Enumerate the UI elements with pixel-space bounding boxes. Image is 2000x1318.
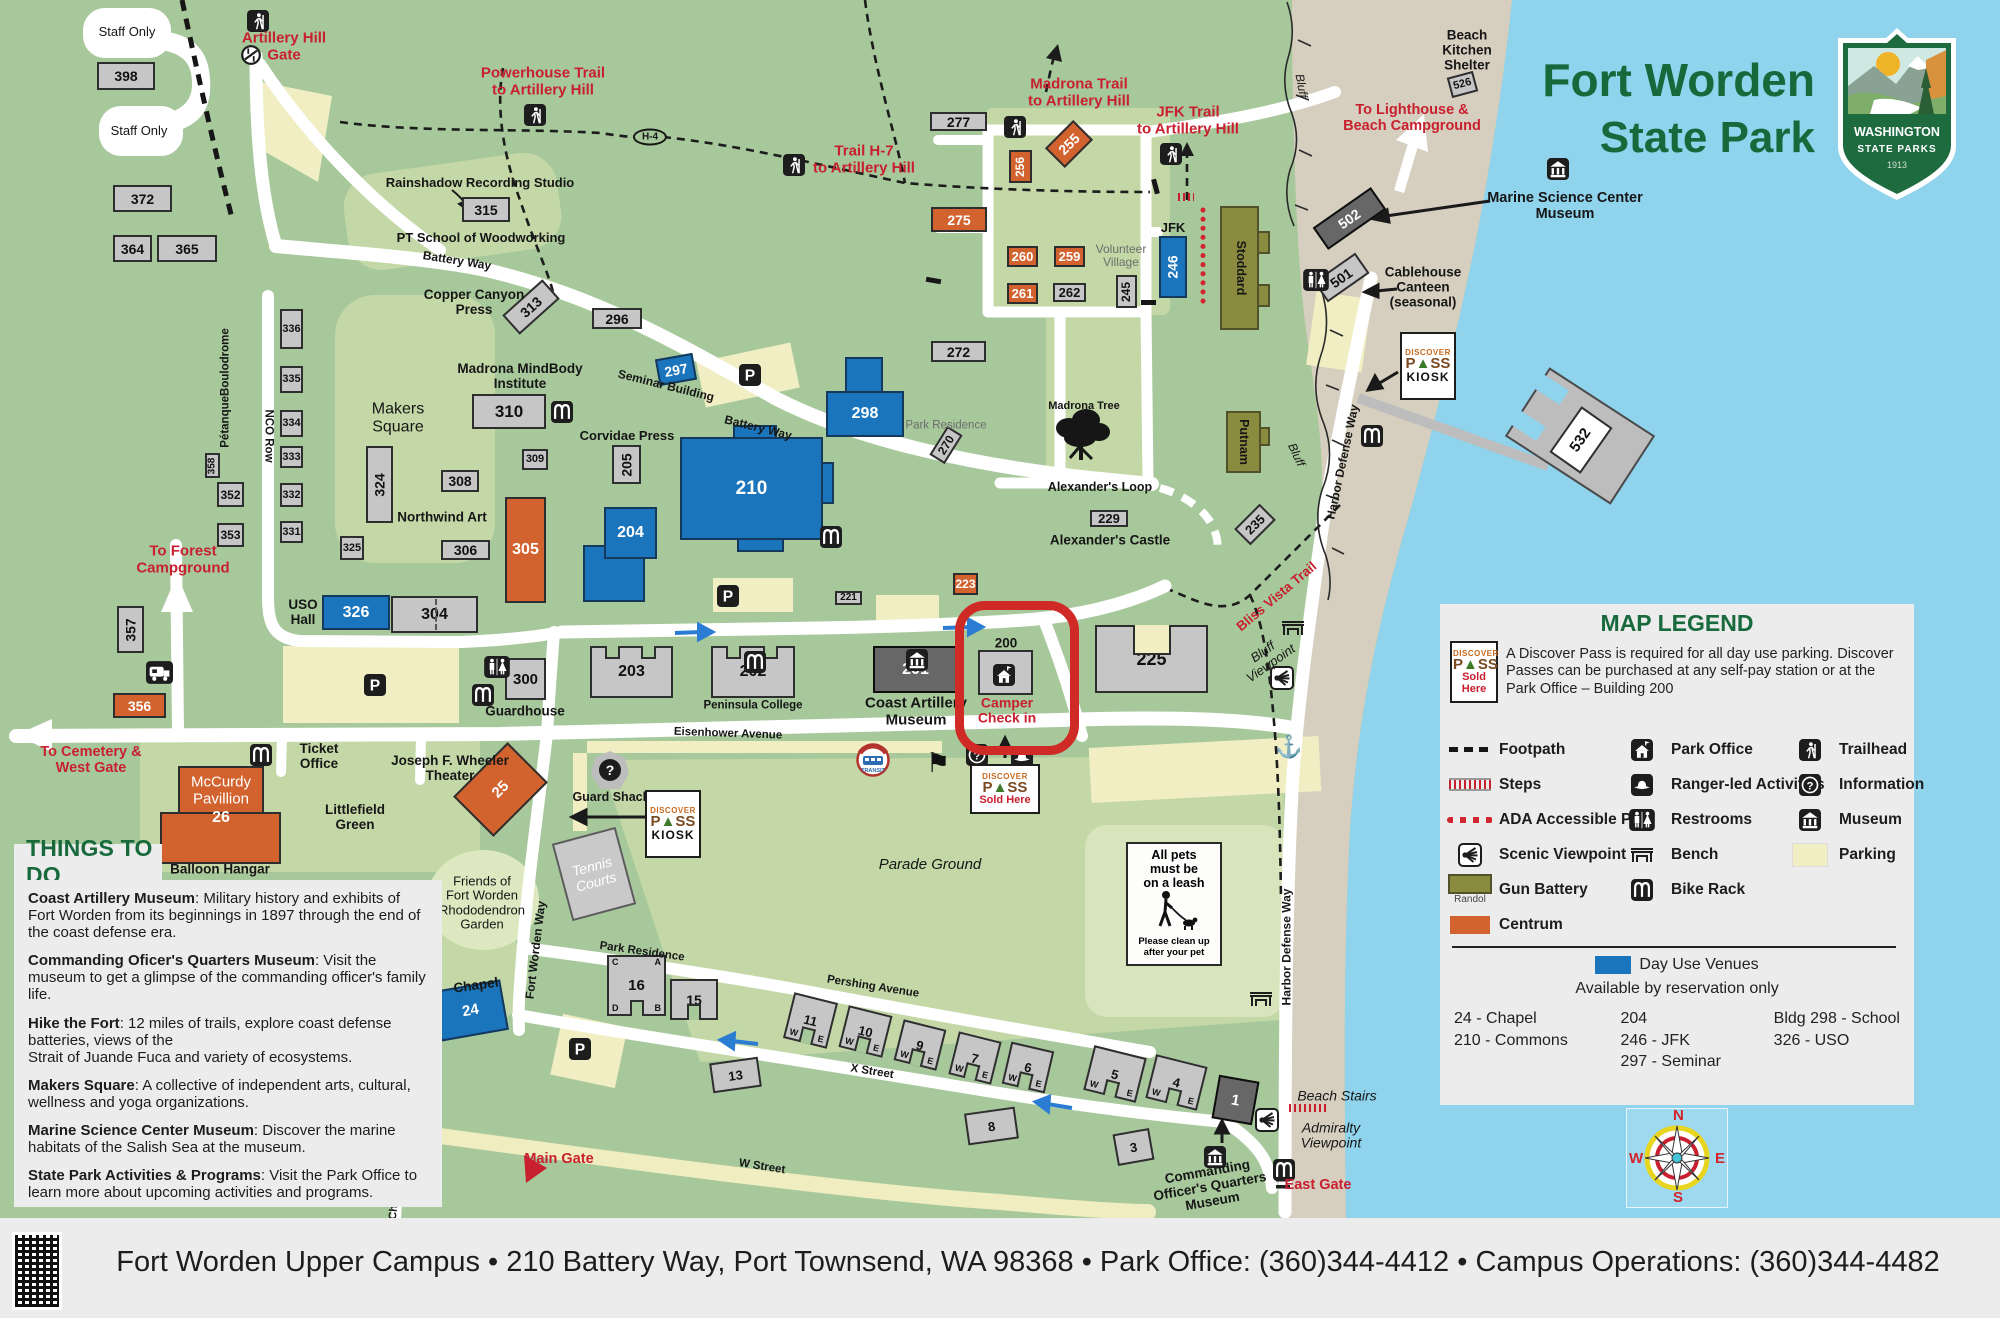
building-333: 333 bbox=[280, 446, 303, 468]
trailhead-icon bbox=[1160, 143, 1182, 165]
map-label: Staff Only bbox=[99, 25, 156, 39]
item-lead: Commanding Oficer's Quarters Museum bbox=[28, 952, 315, 969]
legend-row: ?Information bbox=[1790, 767, 1924, 802]
day-use-column: Bldg 298 - School326 - USO bbox=[1774, 1008, 1900, 1073]
building-315: 315 bbox=[462, 197, 510, 222]
building-label: 205 bbox=[619, 453, 633, 476]
discover-pass-kiosk: DISCOVER P▲SS KIOSK bbox=[1400, 332, 1456, 400]
building-label: 305 bbox=[512, 542, 539, 558]
day-use-section: Day Use Venues Available by reservation … bbox=[1440, 956, 1914, 1073]
map-label: Beach Kitchen Shelter bbox=[1442, 29, 1492, 74]
item-lead: Hike the Fort bbox=[28, 1015, 120, 1032]
building-label: 300 bbox=[513, 672, 538, 687]
legend-label: Gun Battery bbox=[1499, 881, 1588, 899]
building-275: 275 bbox=[931, 207, 987, 232]
legend-label: Information bbox=[1839, 776, 1924, 794]
day-use-venue: 204 bbox=[1621, 1008, 1722, 1030]
building-label: 526 bbox=[1452, 77, 1473, 92]
building-label: 364 bbox=[121, 242, 144, 256]
transit-icon: TRANSIT bbox=[856, 743, 890, 777]
legend-sub: Randol bbox=[1454, 894, 1486, 905]
building-398: 398 bbox=[97, 62, 155, 90]
building-label: 502 bbox=[1336, 206, 1363, 231]
stepsred-icon bbox=[1289, 1104, 1329, 1112]
map-label: Alexander's Loop bbox=[1048, 481, 1152, 495]
map-label: NCO Row bbox=[262, 409, 275, 462]
stepsred-icon bbox=[1178, 193, 1194, 201]
building-label: 352 bbox=[220, 489, 240, 501]
legend-label: Centrum bbox=[1499, 916, 1563, 934]
building-256: 256 bbox=[1009, 150, 1032, 183]
building-label: 221 bbox=[840, 593, 857, 603]
legend-label: Steps bbox=[1499, 776, 1541, 794]
trailhead-icon bbox=[1004, 116, 1026, 138]
building-261: 261 bbox=[1007, 283, 1038, 304]
trailhead-icon bbox=[1790, 739, 1830, 761]
map-label: H-4 bbox=[633, 129, 667, 146]
legend-label: Parking bbox=[1839, 846, 1896, 864]
legend-row: Bike Rack bbox=[1622, 872, 1825, 907]
building-272: 272 bbox=[931, 341, 986, 362]
building-label: 324 bbox=[373, 473, 387, 496]
legend-row: Parking bbox=[1790, 837, 1924, 872]
things-to-do-item: State Park Activities & Programs: Visit … bbox=[28, 1167, 428, 1201]
legend-label: Bike Rack bbox=[1671, 881, 1745, 899]
building-block bbox=[845, 357, 883, 394]
wing-letter: W bbox=[1151, 1087, 1161, 1098]
building-245: 245 bbox=[1116, 275, 1137, 308]
wing-letter: W bbox=[789, 1027, 799, 1038]
map-label: To Cemetery & West Gate bbox=[40, 745, 141, 777]
building-label: 358 bbox=[208, 457, 218, 474]
building-364: 364 bbox=[113, 235, 152, 262]
wing-letter: E bbox=[1126, 1089, 1134, 1099]
building-15: 15 bbox=[670, 979, 718, 1020]
map-label: Putnam bbox=[1236, 419, 1250, 465]
footer-address: Fort Worden Upper Campus • 210 Battery W… bbox=[80, 1246, 1976, 1279]
building-label: 365 bbox=[175, 242, 198, 256]
wing-letter: E bbox=[981, 1070, 989, 1080]
things-to-do-panel: Coast Artillery Museum: Military history… bbox=[14, 880, 442, 1207]
trailhead-icon bbox=[783, 154, 805, 176]
wing-letter: W bbox=[899, 1050, 909, 1061]
legend-label: Museum bbox=[1839, 811, 1902, 829]
building-326: 326 bbox=[322, 595, 390, 630]
info-icon: ? bbox=[599, 759, 621, 781]
legend-row: Trailhead bbox=[1790, 732, 1924, 767]
wing-letter: W bbox=[844, 1036, 854, 1047]
building-label: 372 bbox=[131, 192, 154, 206]
map-label: Madrona Trail to Artillery Hill bbox=[1028, 77, 1130, 110]
compass-s: S bbox=[1673, 1189, 1683, 1206]
building-335: 335 bbox=[280, 366, 303, 393]
map-label: East Gate bbox=[1285, 1178, 1352, 1194]
building-label: 275 bbox=[947, 213, 970, 227]
svg-text:P: P bbox=[370, 678, 380, 695]
map-label: Balloon Hangar bbox=[170, 863, 270, 878]
building-357: 357 bbox=[117, 606, 144, 653]
ranger-icon bbox=[1622, 774, 1662, 796]
building-262: 262 bbox=[1053, 283, 1086, 302]
fort-worden-map: Fort Worden State Park WASHINGTON STATE … bbox=[0, 0, 2000, 1318]
legend-label: Restrooms bbox=[1671, 811, 1752, 829]
map-label: PT School of Woodworking bbox=[397, 231, 566, 245]
flag-icon: ⚑ bbox=[926, 750, 950, 777]
building-352: 352 bbox=[217, 482, 244, 507]
map-label: Volunteer Village bbox=[1096, 243, 1147, 269]
centrum-icon bbox=[1450, 916, 1490, 934]
building-label: 272 bbox=[947, 345, 970, 359]
map-label: To Lighthouse & Beach Campground bbox=[1343, 103, 1481, 135]
restroom-icon bbox=[1622, 809, 1662, 831]
discover-pass-sold-here-icon: DISCOVER P▲SS Sold Here bbox=[1450, 641, 1498, 703]
wing-letter: E bbox=[926, 1056, 934, 1066]
camper-check-in-highlight bbox=[955, 601, 1079, 755]
map-label: Guard Shack bbox=[572, 791, 649, 805]
map-label: Parade Ground bbox=[879, 857, 982, 874]
corner-letter: B bbox=[655, 1004, 662, 1013]
map-label: Makers Square bbox=[372, 400, 424, 435]
parkoffice-icon bbox=[1622, 739, 1662, 761]
map-label: USO Hall bbox=[288, 598, 317, 628]
ada-icon bbox=[1450, 817, 1490, 823]
building-358: 358 bbox=[205, 453, 220, 478]
parking-icon: P bbox=[569, 1038, 591, 1060]
building-label: 325 bbox=[343, 543, 361, 554]
building-label: 298 bbox=[852, 406, 879, 422]
building-label: 309 bbox=[526, 454, 544, 465]
day-use-note: Available by reservation only bbox=[1440, 980, 1914, 998]
bench-icon bbox=[1248, 991, 1274, 1007]
building-310: 310 bbox=[472, 394, 546, 429]
building-label: 532 bbox=[1568, 425, 1595, 454]
building-label: 13 bbox=[727, 1068, 743, 1083]
building-label: 326 bbox=[343, 605, 370, 621]
map-label: Admiralty Viewpoint bbox=[1301, 1121, 1361, 1152]
building-label: 262 bbox=[1059, 286, 1081, 299]
things-to-do-item: Coast Artillery Museum: Military history… bbox=[28, 890, 428, 941]
building-block bbox=[1257, 231, 1270, 254]
bikerack-icon bbox=[551, 401, 573, 423]
building-label: 5 bbox=[1110, 1067, 1120, 1081]
map-label: Main Gate bbox=[524, 1152, 593, 1168]
map-label: Friends of Fort Worden Rhododendron Gard… bbox=[439, 874, 525, 931]
museum-icon bbox=[905, 649, 929, 671]
person-walking-dog-icon bbox=[1148, 890, 1200, 932]
legend-label: Trailhead bbox=[1839, 741, 1907, 759]
item-lead: State Park Activities & Programs bbox=[28, 1167, 261, 1184]
bikerack-icon bbox=[744, 651, 766, 673]
things-to-do-item: Hike the Fort: 12 miles of trails, explo… bbox=[28, 1015, 428, 1066]
pets-leash-sign: All pets must be on a leash Please clean… bbox=[1126, 842, 1222, 966]
building-label: 353 bbox=[220, 529, 240, 541]
building-296: 296 bbox=[592, 308, 642, 329]
building-label: 229 bbox=[1098, 512, 1120, 525]
day-use-swatch bbox=[1595, 956, 1631, 974]
building-label: 306 bbox=[454, 543, 477, 557]
building-372: 372 bbox=[113, 185, 172, 212]
map-label: McCurdy Pavillion bbox=[191, 775, 251, 808]
restroom-icon bbox=[1303, 269, 1329, 291]
day-use-label: Day Use Venues bbox=[1639, 956, 1758, 974]
building-210: 210 bbox=[680, 437, 823, 540]
day-use-venue: 246 - JFK bbox=[1621, 1030, 1722, 1052]
building-365: 365 bbox=[157, 235, 217, 262]
svg-text:P: P bbox=[745, 368, 755, 385]
wing-letter: W bbox=[1007, 1073, 1017, 1084]
building-356: 356 bbox=[113, 693, 166, 718]
wing-letter: E bbox=[1035, 1079, 1043, 1089]
things-to-do-item: Commanding Oficer's Quarters Museum: Vis… bbox=[28, 952, 428, 1003]
trailhead-icon bbox=[524, 104, 546, 126]
things-to-do-item: Makers Square: A collective of independe… bbox=[28, 1077, 428, 1111]
bikerack-icon bbox=[1361, 425, 1383, 447]
map-label: Alexander's Castle bbox=[1050, 534, 1170, 549]
bikerack-icon bbox=[250, 744, 272, 766]
map-label: Marine Science Center Museum bbox=[1487, 191, 1643, 223]
rv-icon bbox=[146, 661, 173, 684]
compass-w: W bbox=[1629, 1150, 1643, 1167]
wing-letter: E bbox=[817, 1034, 825, 1044]
building-277: 277 bbox=[930, 112, 987, 131]
svg-text:TRANSIT: TRANSIT bbox=[861, 768, 885, 774]
building-300: 300 bbox=[505, 658, 546, 700]
pets-sign-title: All pets must be on a leash bbox=[1128, 848, 1220, 890]
legend-row: Centrum bbox=[1450, 907, 1655, 942]
qr-code bbox=[12, 1232, 62, 1310]
map-label: Harbor Defense Way bbox=[1280, 889, 1293, 1006]
map-label: JFK bbox=[1161, 221, 1186, 235]
map-label: Northwind Art bbox=[397, 511, 486, 526]
svg-text:WASHINGTON: WASHINGTON bbox=[1854, 125, 1940, 139]
map-label: Stoddard bbox=[1233, 241, 1247, 296]
building-label: 332 bbox=[282, 490, 300, 501]
building-label: 398 bbox=[114, 69, 137, 83]
building-label: 8 bbox=[987, 1119, 996, 1133]
svg-text:1913: 1913 bbox=[1887, 160, 1907, 170]
legend-label: Bench bbox=[1671, 846, 1718, 864]
building-label: 203 bbox=[618, 664, 645, 680]
legend-label: Footpath bbox=[1499, 741, 1565, 759]
svg-text:P: P bbox=[723, 589, 733, 606]
viewpoint-icon bbox=[1450, 843, 1490, 867]
building-204: 204 bbox=[604, 507, 657, 559]
corner-letter: C bbox=[612, 958, 619, 967]
corner-letter: D bbox=[612, 1004, 619, 1013]
building-246: 246 bbox=[1159, 236, 1187, 298]
map-label: Beach Stairs bbox=[1297, 1088, 1376, 1103]
parking-icon: P bbox=[739, 364, 761, 386]
wing-letter: E bbox=[1187, 1096, 1195, 1106]
building-1: 1 bbox=[1211, 1075, 1259, 1125]
building-label: 1 bbox=[1230, 1092, 1241, 1108]
building-label: 259 bbox=[1059, 250, 1081, 263]
park-title: Fort Worden State Park bbox=[1542, 52, 1815, 165]
day-use-venue: 210 - Commons bbox=[1454, 1030, 1568, 1052]
building-label: 210 bbox=[736, 479, 768, 498]
svg-text:P: P bbox=[575, 1042, 585, 1059]
anchor-icon: ⚓ bbox=[1275, 736, 1302, 758]
legend-title: MAP LEGEND bbox=[1440, 610, 1914, 637]
building-306: 306 bbox=[441, 540, 490, 560]
compass-n: N bbox=[1673, 1107, 1684, 1124]
map-label: Corvidae Press bbox=[580, 429, 675, 443]
day-use-column: 204246 - JFK297 - Seminar bbox=[1621, 1008, 1722, 1073]
building-205: 205 bbox=[612, 445, 641, 484]
building-label: 356 bbox=[128, 699, 151, 713]
day-use-venue: Bldg 298 - School bbox=[1774, 1008, 1900, 1030]
building-label: 334 bbox=[282, 418, 300, 429]
washington-state-parks-logo: WASHINGTON STATE PARKS 1913 bbox=[1830, 26, 1964, 202]
parking-icon: P bbox=[717, 585, 739, 607]
building-label: 260 bbox=[1012, 250, 1034, 263]
parkingsw-icon bbox=[1790, 843, 1830, 867]
building-label: 223 bbox=[955, 578, 975, 590]
map-label: Rainshadow Recording Studio bbox=[386, 176, 575, 190]
building-305: 305 bbox=[505, 497, 546, 603]
building-309: 309 bbox=[522, 449, 548, 470]
building-block bbox=[1259, 427, 1270, 446]
building-336: 336 bbox=[280, 309, 303, 349]
compass-e: E bbox=[1715, 1150, 1725, 1167]
map-label: Joseph F. Wheeler Theater bbox=[391, 754, 509, 784]
legend-label: Park Office bbox=[1671, 741, 1753, 759]
building-label: 16 bbox=[628, 978, 645, 993]
building-225: 225 bbox=[1095, 625, 1208, 693]
day-use-column: 24 - Chapel210 - Commons bbox=[1454, 1008, 1568, 1073]
compass-rose: N E S W bbox=[1626, 1108, 1728, 1208]
building-label: 261 bbox=[1012, 287, 1034, 300]
building-325: 325 bbox=[340, 536, 364, 560]
building-260: 260 bbox=[1007, 246, 1038, 267]
museum-icon bbox=[1790, 809, 1830, 831]
building-label: 256 bbox=[1015, 156, 1027, 176]
svg-text:?: ? bbox=[1807, 780, 1814, 792]
map-label: Cablehouse Canteen (seasonal) bbox=[1385, 266, 1462, 311]
building-label: 297 bbox=[663, 361, 688, 379]
info-icon: ? bbox=[1790, 774, 1830, 796]
building-label: 304 bbox=[421, 607, 448, 623]
map-label: PétanqueBoulodrome bbox=[220, 328, 233, 447]
building-label: 315 bbox=[474, 203, 497, 217]
wing-letter: W bbox=[1089, 1079, 1099, 1090]
day-use-venue: 297 - Seminar bbox=[1621, 1051, 1722, 1073]
title-line1: Fort Worden bbox=[1542, 52, 1815, 110]
item-lead: Marine Science Center Museum bbox=[28, 1122, 254, 1139]
building-334: 334 bbox=[280, 410, 303, 437]
bikerack-icon bbox=[820, 526, 842, 548]
map-label: Powerhouse Trail to Artillery Hill bbox=[481, 66, 605, 99]
building-label: 308 bbox=[448, 474, 471, 488]
footer-bar: Fort Worden Upper Campus • 210 Battery W… bbox=[0, 1218, 2000, 1318]
parking-icon: P bbox=[364, 674, 386, 696]
building-229: 229 bbox=[1090, 510, 1128, 527]
discover-pass-sold-here-sign: DISCOVER P▲SS Sold Here bbox=[970, 764, 1040, 814]
discover-pass-kiosk: DISCOVER P▲SS KIOSK bbox=[645, 790, 701, 858]
building-331: 331 bbox=[280, 521, 303, 543]
svg-text:STATE PARKS: STATE PARKS bbox=[1857, 144, 1936, 155]
building-label: 296 bbox=[605, 312, 628, 326]
building-label: 335 bbox=[282, 374, 300, 385]
pets-sign-note: Please clean up after your pet bbox=[1128, 937, 1220, 959]
map-label: To Forest Campground bbox=[136, 544, 229, 577]
legend-intro: DISCOVER P▲SS Sold Here A Discover Pass … bbox=[1440, 639, 1914, 705]
building-298: 298 bbox=[826, 391, 904, 437]
building-304: 304 bbox=[391, 596, 478, 633]
tick-icon bbox=[1141, 300, 1156, 305]
building-332: 332 bbox=[280, 483, 303, 507]
building-221: 221 bbox=[835, 591, 862, 605]
gunbattery-icon: Randol bbox=[1450, 874, 1490, 905]
item-lead: Coast Artillery Museum bbox=[28, 890, 195, 907]
building-308: 308 bbox=[441, 470, 479, 492]
building-block bbox=[1257, 284, 1270, 307]
day-use-venue: 326 - USO bbox=[1774, 1030, 1900, 1052]
map-label: 26 bbox=[212, 809, 230, 827]
map-legend: MAP LEGEND DISCOVER P▲SS Sold Here A Dis… bbox=[1440, 604, 1914, 1105]
map-label: Guardhouse bbox=[485, 705, 565, 720]
map-label: Peninsula College bbox=[703, 700, 802, 713]
title-line2: State Park bbox=[1542, 110, 1815, 165]
map-label: Littlefield Green bbox=[325, 803, 385, 833]
item-lead: Makers Square bbox=[28, 1077, 135, 1094]
map-label: Park Residence bbox=[905, 420, 986, 433]
building-label: 246 bbox=[1166, 255, 1180, 278]
map-label: Artillery Hill Gate bbox=[242, 31, 326, 64]
building-3: 3 bbox=[1113, 1128, 1155, 1166]
wing-letter: W bbox=[954, 1064, 964, 1075]
building-label: 357 bbox=[124, 618, 138, 641]
bikerack-icon bbox=[1622, 879, 1662, 901]
things-to-do-item: Marine Science Center Museum: Discover t… bbox=[28, 1122, 428, 1156]
map-label: Ticket Office bbox=[300, 742, 339, 772]
map-label: Coast Artillery Museum bbox=[865, 696, 967, 729]
things-to-do-header: THINGS TO DO bbox=[14, 844, 162, 880]
building-label: 245 bbox=[1121, 281, 1133, 301]
footpath-icon bbox=[1450, 747, 1490, 752]
restroom-icon bbox=[484, 656, 510, 678]
building-label: 331 bbox=[282, 527, 300, 538]
map-label: Staff Only bbox=[111, 124, 168, 138]
building-label: 333 bbox=[282, 452, 300, 463]
map-label: Trail H-7 to Artillery Hill bbox=[813, 144, 915, 177]
building-label: 24 bbox=[461, 1002, 480, 1020]
building-label: 3 bbox=[1129, 1140, 1138, 1154]
building-16: 16CADB bbox=[607, 955, 666, 1016]
map-label: JFK Trail to Artillery Hill bbox=[1137, 105, 1239, 138]
map-label: Bluff bbox=[1292, 73, 1309, 99]
building-label: 336 bbox=[282, 324, 300, 335]
building-label: 277 bbox=[947, 115, 970, 129]
building-label: 255 bbox=[1056, 131, 1082, 157]
legend-divider bbox=[1452, 946, 1896, 948]
legend-label: Scenic Viewpoint bbox=[1499, 846, 1626, 864]
building-324: 324 bbox=[366, 446, 393, 523]
map-label: Copper Canyon Press bbox=[424, 288, 525, 318]
building-label: 310 bbox=[495, 403, 523, 420]
building-223: 223 bbox=[953, 573, 978, 595]
wing-letter: E bbox=[872, 1043, 880, 1053]
building-block bbox=[737, 538, 784, 552]
bench-icon bbox=[1622, 847, 1662, 863]
legend-row: Museum bbox=[1790, 802, 1924, 837]
map-label: Madrona Tree bbox=[1048, 400, 1120, 412]
building-203: 203 bbox=[590, 646, 673, 698]
viewpoint-icon bbox=[1255, 1108, 1279, 1132]
building-label: 204 bbox=[617, 525, 644, 541]
day-use-venue: 24 - Chapel bbox=[1454, 1008, 1568, 1030]
map-label: Madrona MindBody Institute bbox=[457, 362, 582, 392]
